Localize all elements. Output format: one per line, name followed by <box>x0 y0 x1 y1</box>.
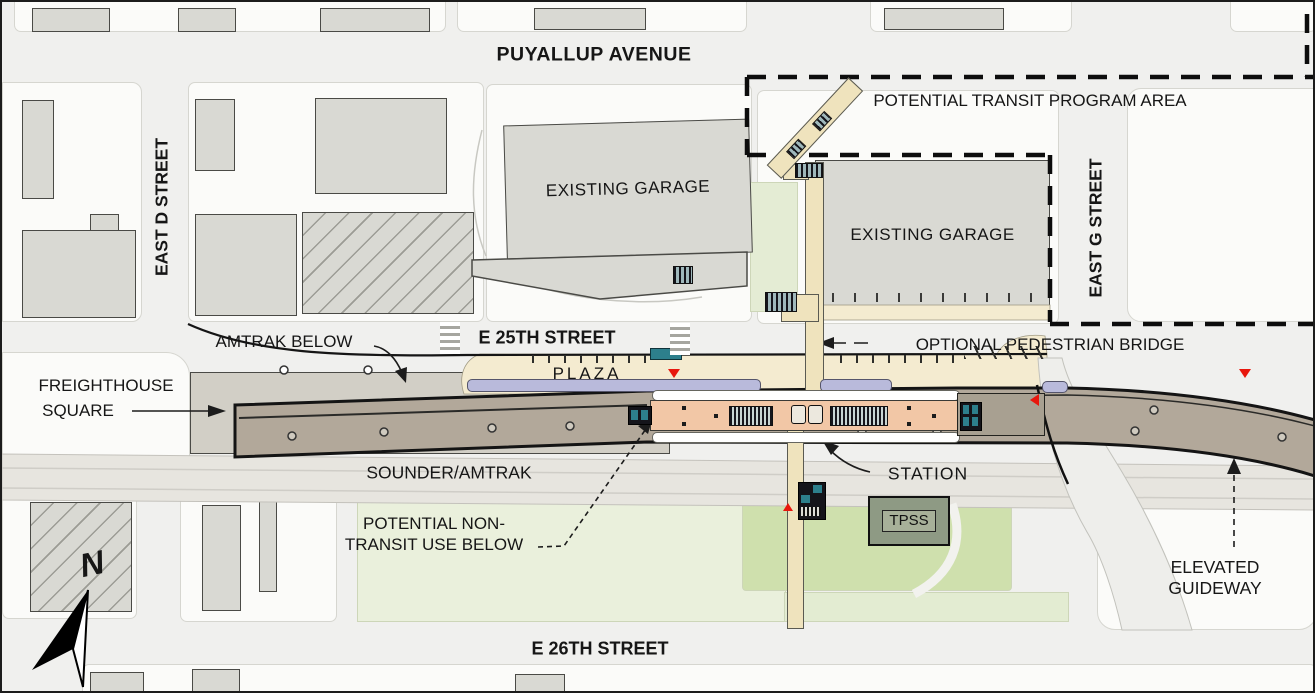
garage-stair-icon <box>673 266 693 284</box>
pedestrian-bridge-north <box>805 162 824 399</box>
sounder-amtrak-label: SOUNDER/AMTRAK <box>366 463 531 484</box>
driveway-curve <box>473 130 486 256</box>
garage-stair-icon <box>795 163 823 178</box>
marker-triangle-left <box>1030 394 1039 406</box>
platform-elevator <box>808 405 823 424</box>
street-label-east-g: EAST G STREET <box>1086 158 1107 297</box>
site-plan-map: EXISTING GARAGE EXISTING GARAGE <box>0 0 1315 693</box>
platform-elevator <box>791 405 806 424</box>
platform-escalator-bank <box>830 406 888 426</box>
elevated-guideway-label: ELEVATED GUIDEWAY <box>1168 557 1261 599</box>
street-label-e26th: E 26TH STREET <box>531 639 668 660</box>
garage-stair-icon <box>765 292 797 312</box>
street-label-puyallup: PUYALLUP AVENUE <box>497 44 692 67</box>
garage-parking-ticks <box>832 293 1040 302</box>
walkway-canopy <box>1042 381 1068 393</box>
south-stair-complex <box>798 482 826 520</box>
marker-triangle-down <box>668 369 680 378</box>
garage-wing <box>472 252 747 299</box>
non-transit-label-line1: POTENTIAL NON- <box>345 513 523 534</box>
street-label-e25th: E 25TH STREET <box>478 328 615 349</box>
amtrak-below-label: AMTRAK BELOW <box>216 332 353 352</box>
street-label-east-d: EAST D STREET <box>152 138 173 276</box>
program-area-boundary <box>747 14 1315 324</box>
crosswalk <box>440 322 460 354</box>
plaza-label: PLAZA <box>553 364 622 384</box>
marker-triangle-down <box>1239 369 1251 378</box>
freighthouse-label-line1: FREIGHTHOUSE <box>38 376 173 396</box>
platform-canopy-south <box>652 432 960 443</box>
tpss-label: TPSS <box>889 512 928 529</box>
program-area-label: POTENTIAL TRANSIT PROGRAM AREA <box>873 91 1186 111</box>
non-transit-label: POTENTIAL NON- TRANSIT USE BELOW <box>345 513 523 555</box>
parking-ticks <box>532 355 660 363</box>
station-label: STATION <box>888 464 968 485</box>
vestibule-elevator <box>960 402 982 431</box>
pedestrian-bridge-label: OPTIONAL PEDESTRIAN BRIDGE <box>916 335 1185 355</box>
marker-triangle-up <box>783 503 793 511</box>
crosswalk <box>670 323 690 355</box>
elevated-guideway-label-line1: ELEVATED <box>1168 557 1261 578</box>
pedestrian-bridge-south <box>787 429 804 629</box>
tpss-building: TPSS <box>868 496 950 546</box>
platform-escalator-bank <box>729 406 773 426</box>
non-transit-label-line2: TRANSIT USE BELOW <box>345 534 523 555</box>
freighthouse-label-line2: SQUARE <box>42 401 114 421</box>
plaza-strip <box>792 305 1050 320</box>
platform-end-elevator <box>628 406 652 425</box>
elevated-guideway-label-line2: GUIDEWAY <box>1168 578 1261 599</box>
parking-ticks <box>840 355 968 363</box>
